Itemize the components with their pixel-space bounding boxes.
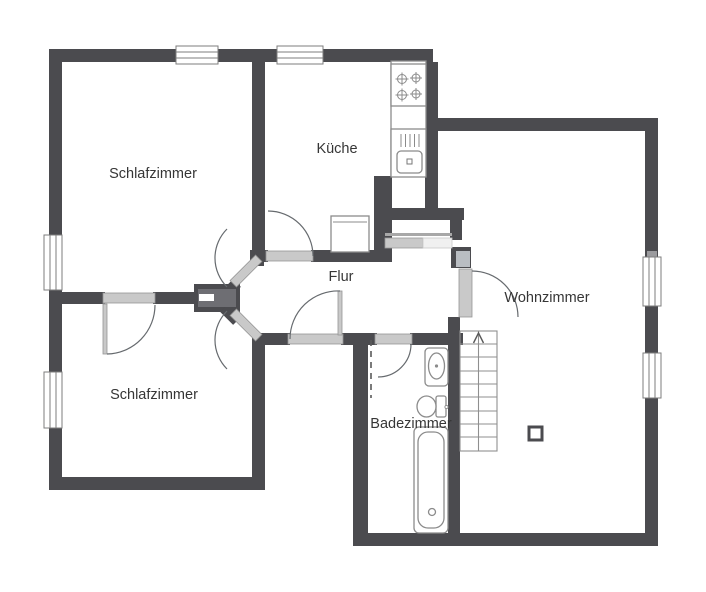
livingroom-door-leaf [459,269,472,317]
bedroom2-diagonal-door-arc [215,311,227,369]
corner-chunk-shade [456,251,470,267]
room-label-wohnzimmer: Wohnzimmer [504,290,589,306]
room-label-flur: Flur [329,269,354,285]
vertex-block-slit [199,294,214,301]
washbasin-drain [435,364,438,367]
wall-cap [647,251,657,257]
kitchen-sink-icon [391,129,426,177]
fridge-icon [331,216,369,252]
kitchen-door-sill [266,251,313,261]
kitchen-door-arc [268,211,313,256]
bedroom2-door-leaf [103,304,107,354]
bathtub-icon [414,427,448,533]
window-top-left [176,46,218,64]
bedroom1-diagonal-door-arc [215,229,227,287]
bathroom-door-sill [375,334,412,344]
stove-icon [391,64,426,106]
washbasin-icon [425,348,448,386]
pillar-icon [529,427,542,440]
window-left-lower [44,372,62,428]
window-right-lower [643,353,661,398]
cased-opening-panel [385,238,423,248]
floor-plan: Schlafzimmer Küche Flur Wohnzimmer Schla… [0,0,706,592]
cased-opening-track [385,233,452,236]
window-kitchen [277,46,323,64]
room-label-schlafzimmer-top: Schlafzimmer [109,166,197,182]
stairs-up-icon [460,331,497,451]
room-label-badezimmer: Badezimmer [370,416,452,432]
room-labels: Schlafzimmer Küche Flur Wohnzimmer Schla… [109,141,590,432]
entrance-door-arc [290,291,340,339]
entrance-door-sill [288,334,343,344]
toilet-icon [417,396,448,417]
misc [529,427,542,440]
bedroom2-door-sill [103,293,155,303]
sink-drain [407,159,412,164]
bedroom1-diagonal-door-leaf [230,255,262,287]
bathroom-door-arc [378,344,411,377]
entrance-door-leaf [338,291,342,335]
bedroom2-diagonal-door-leaf [230,309,262,341]
bedroom2-door-arc [107,305,155,354]
window-right-upper [643,257,661,306]
window-left-upper [44,235,62,290]
room-label-schlafzimmer-bottom: Schlafzimmer [110,387,198,403]
cased-opening-panel-light [423,238,452,248]
toilet-flush-button [445,405,448,408]
bathroom-fixtures [371,340,448,533]
room-label-kueche: Küche [316,141,357,157]
